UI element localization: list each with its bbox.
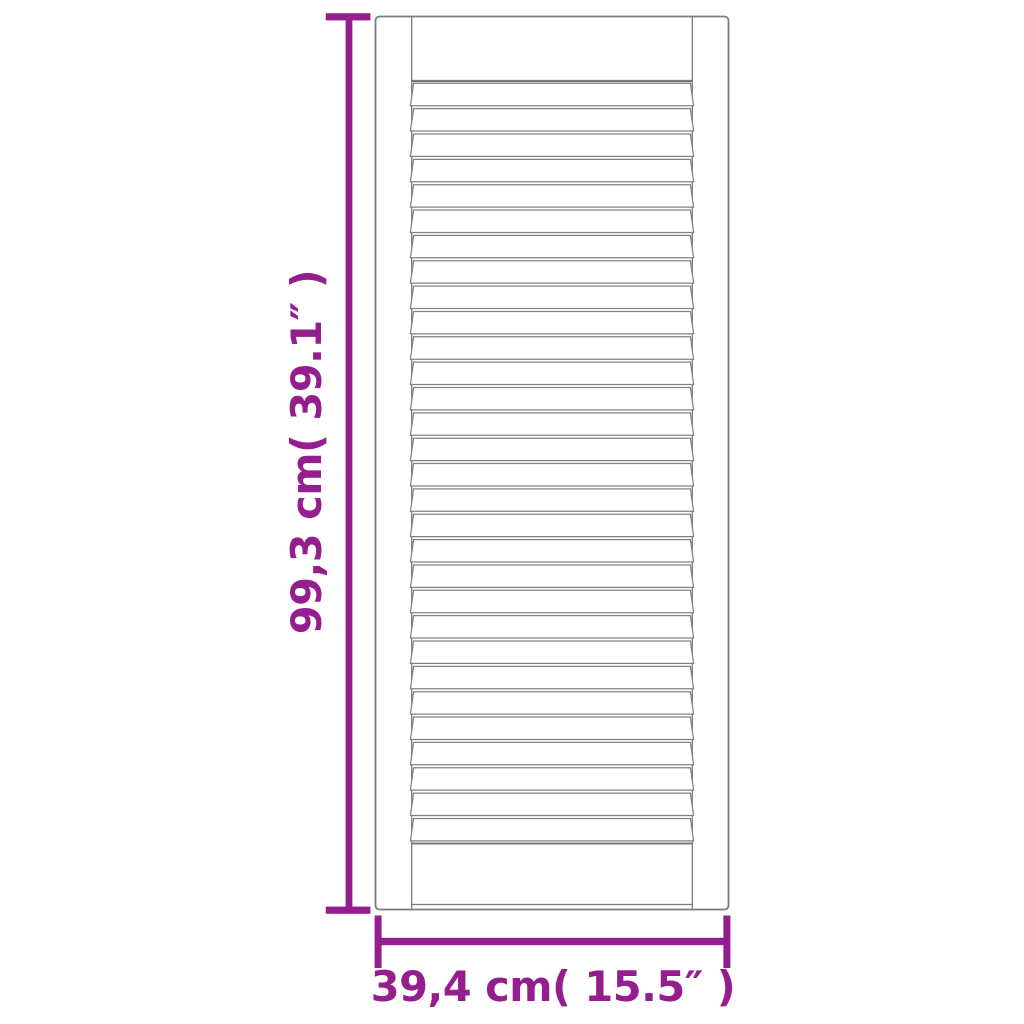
width-dimension: 39,4 cm( 15.5″ ) [371, 916, 735, 1012]
louver-slat [410, 337, 693, 359]
louver-slat [410, 489, 693, 511]
louver-slat [410, 438, 693, 460]
louver-slat [410, 134, 693, 156]
height-dimension-bottom-cap [326, 907, 371, 914]
louver-slat [410, 109, 693, 131]
louver-slat [410, 261, 693, 283]
height-dimension: 99,3 cm( 39.1″ ) [282, 13, 370, 914]
louvre-door-technical-drawing: 99,3 cm( 39.1″ ) 39,4 cm( 15.5″ ) [0, 0, 1024, 1024]
height-dimension-line [346, 17, 353, 911]
product-dimension-image: 99,3 cm( 39.1″ ) 39,4 cm( 15.5″ ) [0, 0, 1024, 1024]
louver-slat [410, 540, 693, 562]
louver-slat [410, 590, 693, 612]
louver-slat [410, 413, 693, 435]
louver-slats [410, 83, 693, 841]
louver-slat [410, 818, 693, 840]
width-dimension-label: 39,4 cm( 15.5″ ) [371, 962, 735, 1011]
louver-slat [410, 286, 693, 308]
louver-slat [410, 692, 693, 714]
width-dimension-right-cap [723, 916, 730, 969]
louver-slat [410, 311, 693, 333]
height-dimension-top-cap [326, 13, 371, 20]
height-dimension-label: 99,3 cm( 39.1″ ) [282, 270, 331, 634]
louver-slat [410, 616, 693, 638]
louver-slat [410, 83, 693, 105]
louver-slat [410, 793, 693, 815]
louver-slat [410, 159, 693, 181]
louver-slat [410, 641, 693, 663]
louver-slat [410, 210, 693, 232]
louver-slat [410, 768, 693, 790]
width-dimension-line [376, 938, 727, 945]
louver-slat [410, 565, 693, 587]
louver-slat [410, 185, 693, 207]
louver-slat [410, 464, 693, 486]
louver-slat [410, 666, 693, 688]
louver-slat [410, 514, 693, 536]
louver-slat [410, 742, 693, 764]
louver-slat [410, 388, 693, 410]
width-dimension-left-cap [375, 916, 382, 969]
louver-slat [410, 717, 693, 739]
louver-slat [410, 362, 693, 384]
louver-slat [410, 235, 693, 257]
door-drawing [376, 17, 729, 910]
